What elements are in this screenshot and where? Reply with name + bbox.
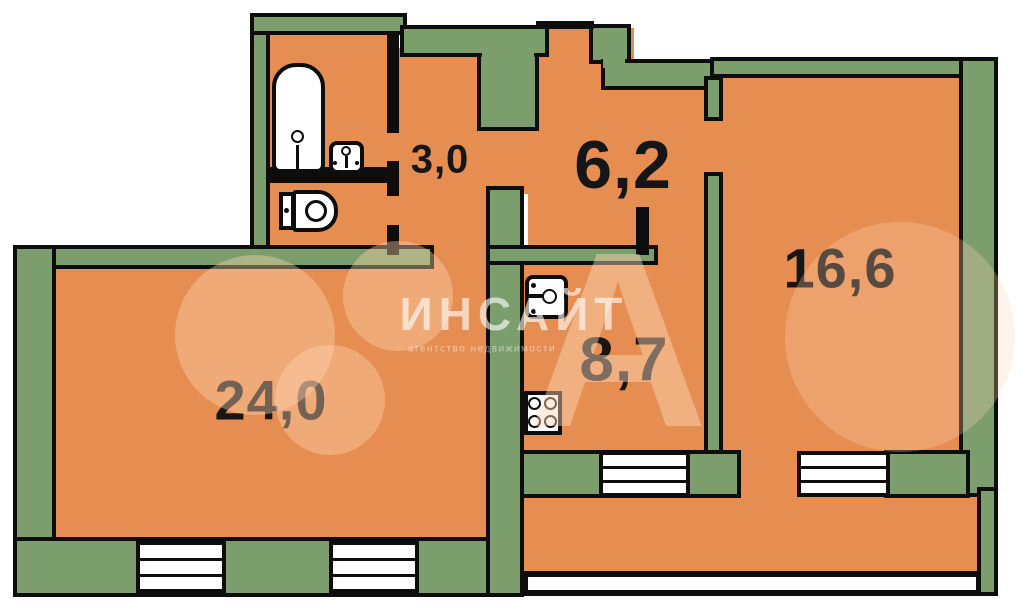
area-label-living-room: 16,6 [784,236,897,301]
stove-burner [544,397,557,410]
sink-faucet [341,146,351,156]
wall-outer-bottom-left-band [13,245,434,269]
wall-kitchen-top [486,245,658,265]
sink-stem [345,156,348,168]
window-main-room-1 [136,541,226,593]
wall-bathroom-left [250,13,270,257]
wall-hall-nook-edge [536,21,594,29]
wall-junction-patch [603,56,625,68]
area-label-corridor: 3,0 [411,138,470,183]
wall-column [477,50,539,131]
stove-burner [544,415,557,428]
toilet-button [284,208,289,213]
kitchen-sink-dot [531,283,536,288]
wall-bathroom-top [250,13,407,35]
wall-balcony-right [977,487,998,596]
wall-kitchen-door-stub [636,207,649,255]
stove-burner [528,415,541,428]
bathtub-drain [291,130,304,143]
wall-junction-patch [17,541,52,593]
window-balcony-front [524,571,980,596]
wall-living-room-bottom [884,450,970,498]
window-kitchen [599,451,690,497]
stove-burner [528,397,541,410]
wall-living-room-side-lower [704,172,723,457]
wall-junction-patch [963,61,994,74]
window-main-room-2 [329,541,419,593]
wall-junction-patch [482,48,534,58]
sink-dot [355,161,359,165]
kitchen-sink-dot [531,309,536,314]
area-label-hallway: 6,2 [574,126,672,204]
wall-main-room-bottom [13,537,524,597]
floor-plan: 3,0 6,2 16,6 8,7 24,0 А ИНСАЙТ агентство… [0,0,1023,613]
wall-bathroom-right [387,33,399,133]
wall-toilet-door-stub [387,161,399,196]
sink-dot [333,161,337,165]
kitchen-sink-drain [542,289,557,304]
wall-living-room-top [710,57,998,78]
balcony-area [518,488,986,582]
wall-outer-right [959,57,998,497]
bathtub-stem [296,145,299,169]
wall-junction-patch [17,249,52,265]
area-label-kitchen: 8,7 [579,325,668,396]
area-label-main-room: 24,0 [215,368,328,433]
wall-living-room-side-upper [704,76,723,121]
window-living-room [797,451,890,497]
wall-toilet-bottom-stub [387,225,399,255]
toilet-bowl-circle [305,200,327,222]
